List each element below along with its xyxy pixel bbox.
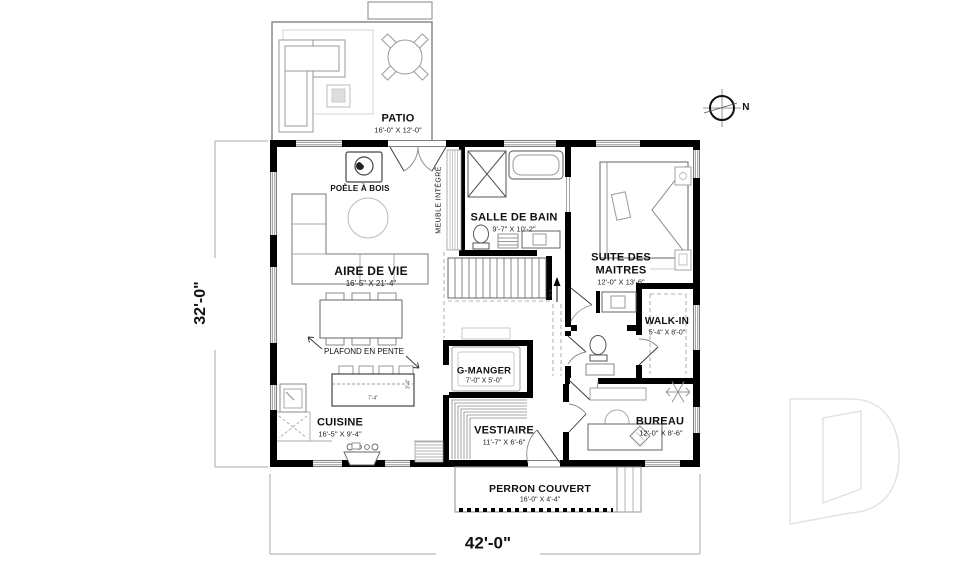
pantry-dims: 7'-0" X 5'-0": [466, 378, 502, 385]
island-depth-dim: 3'-4": [407, 379, 412, 389]
built-in-label: MEUBLE INTÉGRÉ: [436, 166, 443, 233]
bath-cabinet: [498, 234, 518, 248]
mudroom-label: VESTIAIRE: [474, 426, 534, 437]
sloped-ceiling-label: PLAFOND EN PENTE: [324, 348, 404, 356]
dining-table: [320, 293, 402, 345]
north-label: N: [742, 103, 749, 113]
built-in-cabinet: [447, 150, 461, 250]
kitchen-label: CUISINE: [317, 418, 363, 429]
mudroom-dims: 11'-7" X 6'-6": [483, 438, 526, 446]
master-suite-label-2: MAITRES: [596, 266, 647, 277]
island-width-dim: 7'-4": [368, 397, 378, 402]
office-label: BUREAU: [636, 417, 684, 428]
porch-label: PERRON COUVERT: [489, 484, 591, 495]
living-room-label: AIRE DE VIE: [334, 265, 408, 277]
patio-side-table: [327, 85, 350, 107]
pantry-label: G-MANGER: [457, 366, 511, 376]
pocket-door: [564, 177, 572, 212]
north-compass-icon: [703, 89, 741, 127]
bath-vanity: [522, 231, 560, 248]
master-suite-label-1: SUITE DES: [591, 253, 651, 264]
floor-plan: PATIO 16'-0" X 12'-0" POÊLE À BOIS AIRE …: [0, 0, 960, 569]
counter-hatch: [415, 442, 443, 462]
office-dims: 12'-0" X 8'-6": [639, 429, 682, 437]
bathtub-icon: [509, 151, 563, 179]
brand-watermark-icon: [790, 399, 899, 524]
living-room-dims: 16'-5" X 21'-4": [346, 280, 397, 288]
porch-dims: 16'-0" X 4'-4": [520, 497, 560, 504]
wood-stove-icon: [346, 152, 382, 182]
suite-vanity-nook: [602, 292, 636, 312]
patio-dims: 16'-0" X 12'-0": [374, 126, 421, 134]
staircase: [448, 258, 546, 298]
width-dimension: 42'-0": [465, 535, 511, 552]
kitchen-sink: [280, 384, 306, 412]
bath-toilet-icon: [473, 225, 489, 249]
plan-linework: [0, 0, 960, 569]
shower-icon: [468, 151, 506, 197]
stair-direction-label: S-S: [549, 289, 554, 297]
kitchen-dims: 16'-5" X 9'-4": [318, 430, 361, 438]
bathroom-dims: 9'-7" X 10'-2": [492, 225, 535, 233]
master-suite-dims: 12'-0" X 13'-6": [597, 278, 644, 286]
patio-table: [382, 34, 428, 80]
height-dimension: 32'-0": [193, 281, 209, 324]
walk-in-label: WALK-IN: [645, 317, 689, 327]
patio-label: PATIO: [382, 114, 415, 125]
bathroom-label: SALLE DE BAIN: [471, 213, 558, 224]
wood-stove-label: POÊLE À BOIS: [330, 185, 389, 193]
walk-in-dims: 5'-4" X 8'-0": [649, 330, 685, 337]
